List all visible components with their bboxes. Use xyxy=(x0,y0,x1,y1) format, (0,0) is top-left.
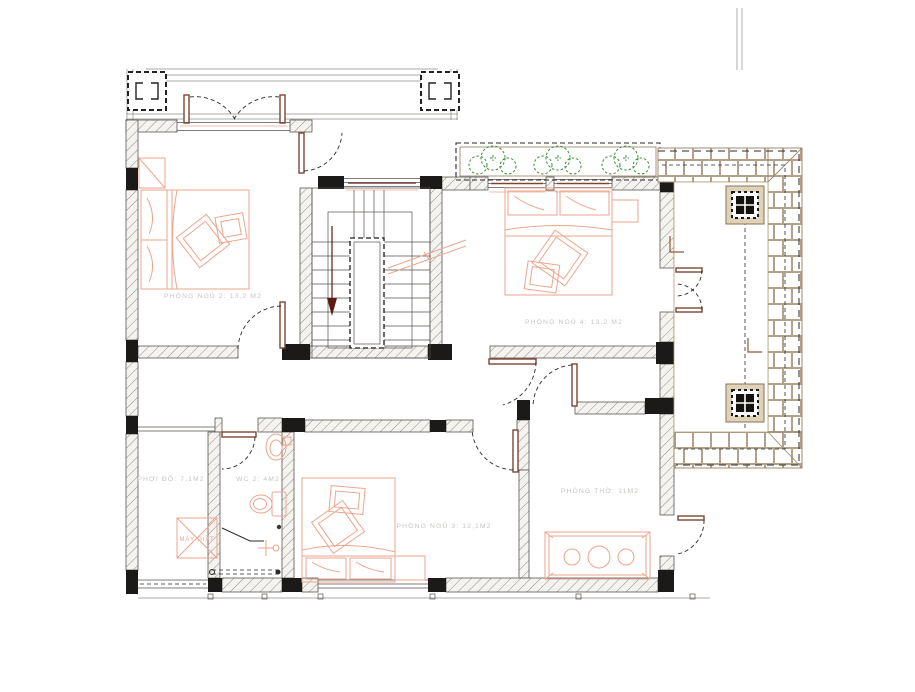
wardrobe-bedroom2 xyxy=(139,158,165,188)
shower-area xyxy=(222,525,281,556)
door-bedroom4-hall xyxy=(489,359,536,405)
planter-box xyxy=(456,143,660,180)
nightstand-bedroom4 xyxy=(612,200,638,222)
terrace-column-bottom xyxy=(726,384,764,422)
bed-bedroom2 xyxy=(141,190,249,289)
staircase xyxy=(312,188,466,358)
door-worship xyxy=(533,364,577,406)
floor-plan-drawing: PHÒNG NGỦ 2: 13,2 M2 PHÒNG NGỦ 4: 13,2 M… xyxy=(0,0,915,692)
room-label-bedroom3: PHÒNG NGỦ 3: 12,1M2 xyxy=(397,521,492,530)
bed-bedroom4 xyxy=(505,188,612,295)
shrub-cluster-3 xyxy=(602,146,649,174)
ground-line xyxy=(138,594,710,599)
stair-break-line xyxy=(388,240,466,274)
altar-table xyxy=(545,532,650,579)
nightstand-bedroom3 xyxy=(395,556,425,580)
door-bedroom3 xyxy=(472,429,518,472)
window-bedroom3-south xyxy=(318,580,428,588)
shrub-cluster-1 xyxy=(469,146,516,174)
bed-bedroom3 xyxy=(302,478,395,582)
room-label-laundry: PHƠI ĐỒ: 7,1M2 xyxy=(137,473,204,483)
room-label-wc: WC 2: 4M2 xyxy=(236,476,280,483)
balcony-column-right xyxy=(421,72,459,110)
balcony-column-left xyxy=(128,72,166,110)
room-label-bedroom2: PHÒNG NGỦ 2: 13,2 M2 xyxy=(164,291,262,300)
door-wc xyxy=(222,432,256,469)
roof-edge-line xyxy=(737,8,742,70)
room-label-bedroom4: PHÒNG NGỦ 4: 13,2 M2 xyxy=(525,317,623,326)
terrace-column-top xyxy=(726,186,764,224)
window-bedroom4-left xyxy=(488,180,546,193)
shrub-cluster-2 xyxy=(534,146,581,174)
room-label-worship: PHÒNG THỜ: 11M2 xyxy=(561,486,639,495)
door-bedroom2 xyxy=(238,302,285,350)
window-bedroom4-right xyxy=(554,180,612,193)
laundry-open-rail xyxy=(138,580,208,588)
stair-down-arrow xyxy=(327,226,337,316)
label-washing-machine: MÁY GIẶT xyxy=(180,536,215,543)
door-hall-top xyxy=(299,133,342,173)
balcony-railing xyxy=(126,69,458,120)
door-terrace-worship xyxy=(678,516,704,554)
laundry-boundary xyxy=(138,427,215,431)
door-french-balcony xyxy=(177,95,290,131)
floor-plan-canvas: PHÒNG NGỦ 2: 13,2 M2 PHÒNG NGỦ 4: 13,2 M… xyxy=(0,0,915,692)
toilet xyxy=(250,492,286,516)
